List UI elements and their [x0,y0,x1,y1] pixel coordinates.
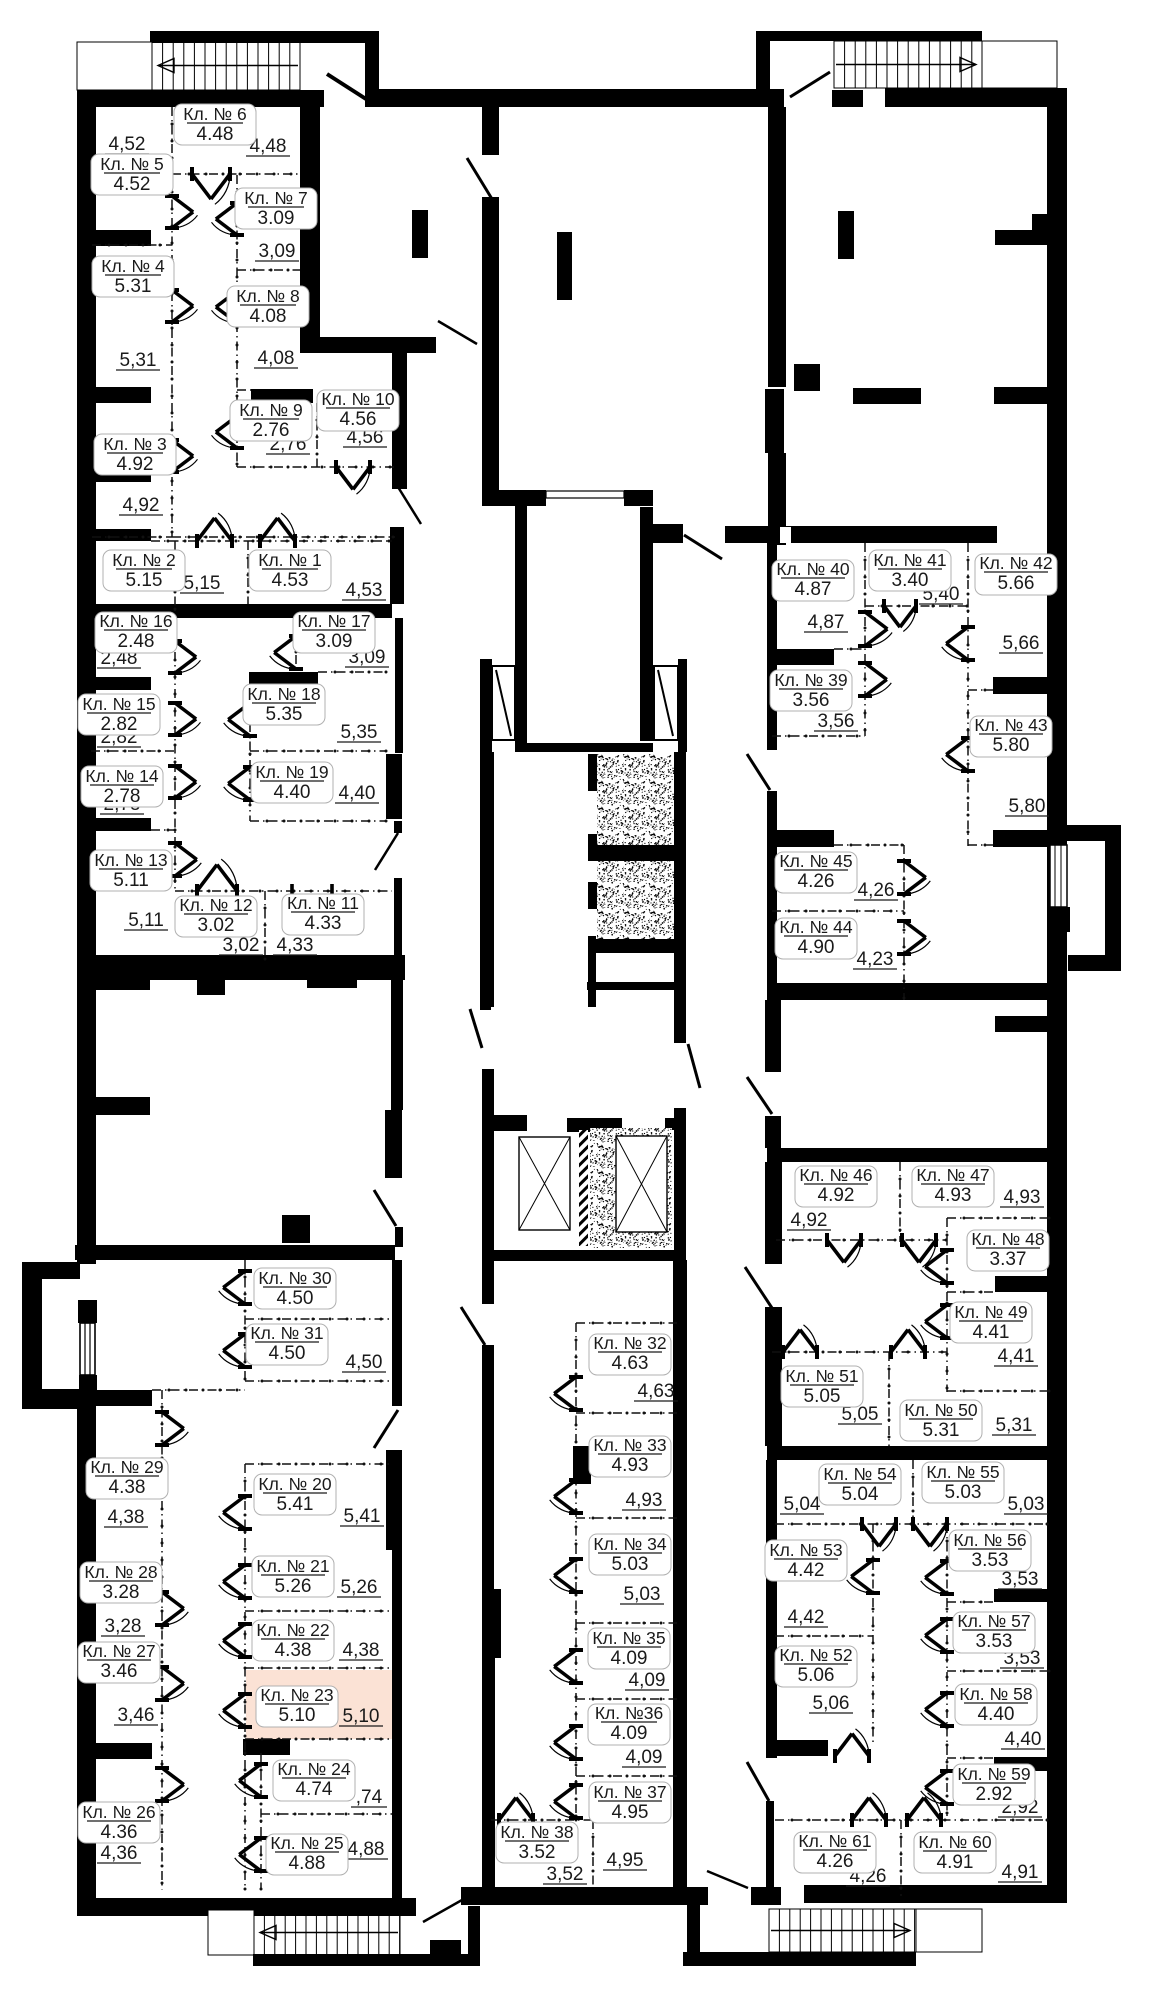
svg-text:3.53: 3.53 [972,1550,1009,1571]
svg-text:Кл. № 24: Кл. № 24 [277,1759,350,1779]
svg-text:4.87: 4.87 [795,579,832,600]
svg-text:4.40: 4.40 [978,1704,1015,1725]
svg-text:5.06: 5.06 [798,1665,835,1686]
svg-text:4.09: 4.09 [611,1723,648,1744]
svg-text:Кл. № 3: Кл. № 3 [103,434,167,454]
svg-text:3.28: 3.28 [103,1582,140,1603]
svg-text:Кл. № 4: Кл. № 4 [101,256,165,276]
svg-text:4,92: 4,92 [791,1210,828,1231]
svg-text:4.42: 4.42 [788,1560,825,1581]
svg-text:Кл. № 27: Кл. № 27 [82,1641,155,1661]
svg-text:5.31: 5.31 [115,276,152,297]
svg-text:4,92: 4,92 [123,495,160,516]
svg-text:Кл. № 31: Кл. № 31 [250,1323,323,1343]
svg-text:Кл. № 40: Кл. № 40 [776,559,849,579]
svg-text:4.41: 4.41 [973,1322,1010,1343]
svg-text:3.56: 3.56 [793,690,830,711]
svg-text:3,56: 3,56 [818,711,855,732]
svg-text:4.74: 4.74 [296,1779,333,1800]
svg-text:4.56: 4.56 [340,409,377,430]
svg-text:Кл. № 34: Кл. № 34 [593,1534,666,1554]
svg-text:Кл. № 18: Кл. № 18 [247,684,320,704]
svg-text:5,03: 5,03 [1008,1494,1045,1515]
svg-text:4.88: 4.88 [289,1853,326,1874]
svg-text:Кл. № 25: Кл. № 25 [270,1833,343,1853]
svg-text:3,46: 3,46 [118,1705,155,1726]
svg-text:Кл. № 1: Кл. № 1 [258,550,322,570]
svg-text:4,93: 4,93 [626,1490,663,1511]
svg-text:3,53: 3,53 [1002,1569,1039,1590]
svg-text:4.36: 4.36 [101,1822,138,1843]
svg-text:4,93: 4,93 [1004,1187,1041,1208]
svg-text:4.50: 4.50 [277,1288,314,1309]
svg-text:Кл. № 55: Кл. № 55 [926,1462,999,1482]
svg-text:5,03: 5,03 [624,1584,661,1605]
svg-text:4,38: 4,38 [108,1507,145,1528]
svg-text:4.92: 4.92 [117,454,154,475]
svg-text:4,50: 4,50 [346,1352,383,1373]
svg-text:Кл. № 21: Кл. № 21 [256,1556,329,1576]
svg-text:4.09: 4.09 [611,1648,648,1669]
svg-text:4,09: 4,09 [626,1747,663,1768]
svg-text:4.91: 4.91 [937,1852,974,1873]
svg-text:4.26: 4.26 [798,871,835,892]
svg-text:5,15: 5,15 [184,573,221,594]
svg-text:5.03: 5.03 [945,1482,982,1503]
svg-text:4.40: 4.40 [274,782,311,803]
svg-text:4.48: 4.48 [197,124,234,145]
svg-text:4.38: 4.38 [109,1477,146,1498]
svg-text:4.92: 4.92 [818,1185,855,1206]
svg-text:Кл. № 13: Кл. № 13 [94,850,167,870]
svg-text:Кл. № 37: Кл. № 37 [593,1782,666,1802]
svg-text:4.50: 4.50 [269,1343,306,1364]
svg-text:Кл. № 57: Кл. № 57 [957,1611,1030,1631]
svg-text:Кл. № 56: Кл. № 56 [953,1530,1026,1550]
svg-text:Кл. № 54: Кл. № 54 [823,1464,896,1484]
svg-text:4.93: 4.93 [935,1185,972,1206]
svg-text:5.10: 5.10 [279,1705,316,1726]
svg-text:4.38: 4.38 [275,1640,312,1661]
svg-text:Кл. № 11: Кл. № 11 [287,893,359,913]
svg-text:4,95: 4,95 [607,1850,644,1871]
svg-text:5,41: 5,41 [344,1506,381,1527]
svg-text:Кл. № 23: Кл. № 23 [260,1685,333,1705]
svg-text:5,80: 5,80 [1009,796,1046,817]
svg-text:5.04: 5.04 [842,1484,879,1505]
svg-text:5,31: 5,31 [996,1415,1033,1436]
svg-text:4,40: 4,40 [339,783,376,804]
svg-text:3.02: 3.02 [198,915,235,936]
svg-text:5.26: 5.26 [275,1576,312,1597]
svg-text:4,26: 4,26 [858,880,895,901]
svg-text:Кл. № 46: Кл. № 46 [799,1165,872,1185]
svg-text:3.37: 3.37 [990,1249,1027,1270]
svg-text:4,38: 4,38 [343,1640,380,1661]
svg-text:5,35: 5,35 [341,722,378,743]
svg-text:Кл. № 26: Кл. № 26 [82,1802,155,1822]
svg-text:5,11: 5,11 [128,910,164,931]
svg-text:4,23: 4,23 [857,949,894,970]
svg-text:Кл. № 43: Кл. № 43 [974,715,1047,735]
svg-text:Кл. № 44: Кл. № 44 [779,917,852,937]
svg-text:2.48: 2.48 [118,631,155,652]
svg-text:5,04: 5,04 [784,1494,821,1515]
svg-text:,74: ,74 [356,1787,383,1808]
svg-text:Кл. № 48: Кл. № 48 [971,1229,1044,1249]
svg-text:5.31: 5.31 [923,1420,960,1441]
svg-text:Кл. № 53: Кл. № 53 [769,1540,842,1560]
svg-text:Кл. № 9: Кл. № 9 [239,400,303,420]
svg-text:Кл. № 7: Кл. № 7 [244,188,308,208]
svg-text:Кл. № 51: Кл. № 51 [785,1366,858,1386]
svg-text:4,33: 4,33 [277,935,314,956]
svg-text:Кл. № 20: Кл. № 20 [258,1474,331,1494]
svg-text:4,09: 4,09 [629,1670,666,1691]
svg-text:Кл. № 49: Кл. № 49 [954,1302,1027,1322]
svg-text:Кл. № 35: Кл. № 35 [592,1628,665,1648]
svg-text:3,02: 3,02 [223,935,260,956]
svg-text:Кл. № 60: Кл. № 60 [918,1832,991,1852]
svg-text:Кл. № 6: Кл. № 6 [183,104,247,124]
svg-text:Кл. № 15: Кл. № 15 [82,694,155,714]
svg-text:Кл. № 30: Кл. № 30 [258,1268,331,1288]
svg-text:4.26: 4.26 [817,1851,854,1872]
svg-text:Кл. № 10: Кл. № 10 [321,389,394,409]
svg-text:4.63: 4.63 [612,1353,649,1374]
svg-text:Кл. № 16: Кл. № 16 [99,611,172,631]
svg-text:Кл. № 32: Кл. № 32 [593,1333,666,1353]
svg-text:Кл. № 41: Кл. № 41 [873,550,946,570]
svg-text:Кл. № 33: Кл. № 33 [593,1435,666,1455]
svg-text:4.52: 4.52 [114,174,151,195]
svg-text:Кл. №36: Кл. №36 [595,1703,663,1723]
svg-text:Кл. № 39: Кл. № 39 [774,670,847,690]
svg-text:4,63: 4,63 [638,1381,675,1402]
svg-text:2.82: 2.82 [101,714,138,735]
svg-text:3,52: 3,52 [547,1864,584,1885]
svg-text:4,91: 4,91 [1002,1862,1039,1883]
svg-text:3,09: 3,09 [259,241,296,262]
svg-text:Кл. № 28: Кл. № 28 [84,1562,157,1582]
svg-text:4.90: 4.90 [798,937,835,958]
svg-text:3,28: 3,28 [105,1616,142,1637]
svg-text:2.76: 2.76 [253,420,290,441]
svg-text:4.93: 4.93 [612,1455,649,1476]
svg-text:5.11: 5.11 [113,870,149,891]
svg-text:Кл. № 2: Кл. № 2 [112,550,176,570]
svg-text:4,87: 4,87 [808,612,845,633]
svg-text:Кл. № 38: Кл. № 38 [500,1822,573,1842]
svg-text:5.15: 5.15 [126,570,163,591]
svg-text:4,36: 4,36 [101,1843,138,1864]
svg-text:Кл. № 14: Кл. № 14 [85,766,158,786]
svg-text:5,26: 5,26 [341,1577,378,1598]
svg-text:5.35: 5.35 [266,704,303,725]
svg-text:Кл. № 12: Кл. № 12 [179,895,252,915]
svg-text:4,08: 4,08 [258,348,295,369]
svg-text:5.03: 5.03 [612,1554,649,1575]
svg-text:5,06: 5,06 [813,1693,850,1714]
svg-text:3.09: 3.09 [258,208,295,229]
svg-text:3.53: 3.53 [976,1631,1013,1652]
svg-text:3.40: 3.40 [892,570,929,591]
svg-text:5,66: 5,66 [1003,633,1040,654]
svg-text:Кл. № 50: Кл. № 50 [904,1400,977,1420]
svg-text:3.46: 3.46 [101,1661,138,1682]
svg-text:Кл. № 52: Кл. № 52 [779,1645,852,1665]
svg-text:4,88: 4,88 [348,1839,385,1860]
svg-text:Кл. № 19: Кл. № 19 [255,762,328,782]
svg-text:5.66: 5.66 [998,573,1035,594]
svg-text:Кл. № 5: Кл. № 5 [100,154,164,174]
svg-text:Кл. № 47: Кл. № 47 [916,1165,989,1185]
svg-text:4.08: 4.08 [250,306,287,327]
svg-text:Кл. № 17: Кл. № 17 [297,611,370,631]
svg-text:4,40: 4,40 [1005,1729,1042,1750]
svg-text:2.78: 2.78 [104,786,141,807]
svg-text:4,42: 4,42 [788,1607,825,1628]
svg-text:4,53: 4,53 [346,580,383,601]
svg-text:4.33: 4.33 [305,913,342,934]
svg-text:Кл. № 42: Кл. № 42 [979,553,1052,573]
svg-text:Кл. № 45: Кл. № 45 [779,851,852,871]
svg-text:Кл. № 29: Кл. № 29 [90,1457,163,1477]
svg-text:5.80: 5.80 [993,735,1030,756]
svg-text:5.05: 5.05 [804,1386,841,1407]
svg-text:5,31: 5,31 [120,350,157,371]
svg-text:4,52: 4,52 [109,134,146,155]
svg-text:Кл. № 61: Кл. № 61 [798,1831,871,1851]
svg-text:5,10: 5,10 [343,1706,380,1727]
svg-text:Кл. № 8: Кл. № 8 [236,286,300,306]
svg-text:3.52: 3.52 [519,1842,556,1863]
svg-text:4.53: 4.53 [272,570,309,591]
svg-text:3.09: 3.09 [316,631,353,652]
svg-text:4.95: 4.95 [612,1802,649,1823]
svg-text:2.92: 2.92 [976,1784,1013,1805]
svg-text:Кл. № 22: Кл. № 22 [256,1620,329,1640]
svg-text:4,41: 4,41 [998,1346,1035,1367]
svg-text:5.41: 5.41 [277,1494,314,1515]
svg-text:Кл. № 58: Кл. № 58 [959,1684,1032,1704]
svg-text:Кл. № 59: Кл. № 59 [957,1764,1030,1784]
